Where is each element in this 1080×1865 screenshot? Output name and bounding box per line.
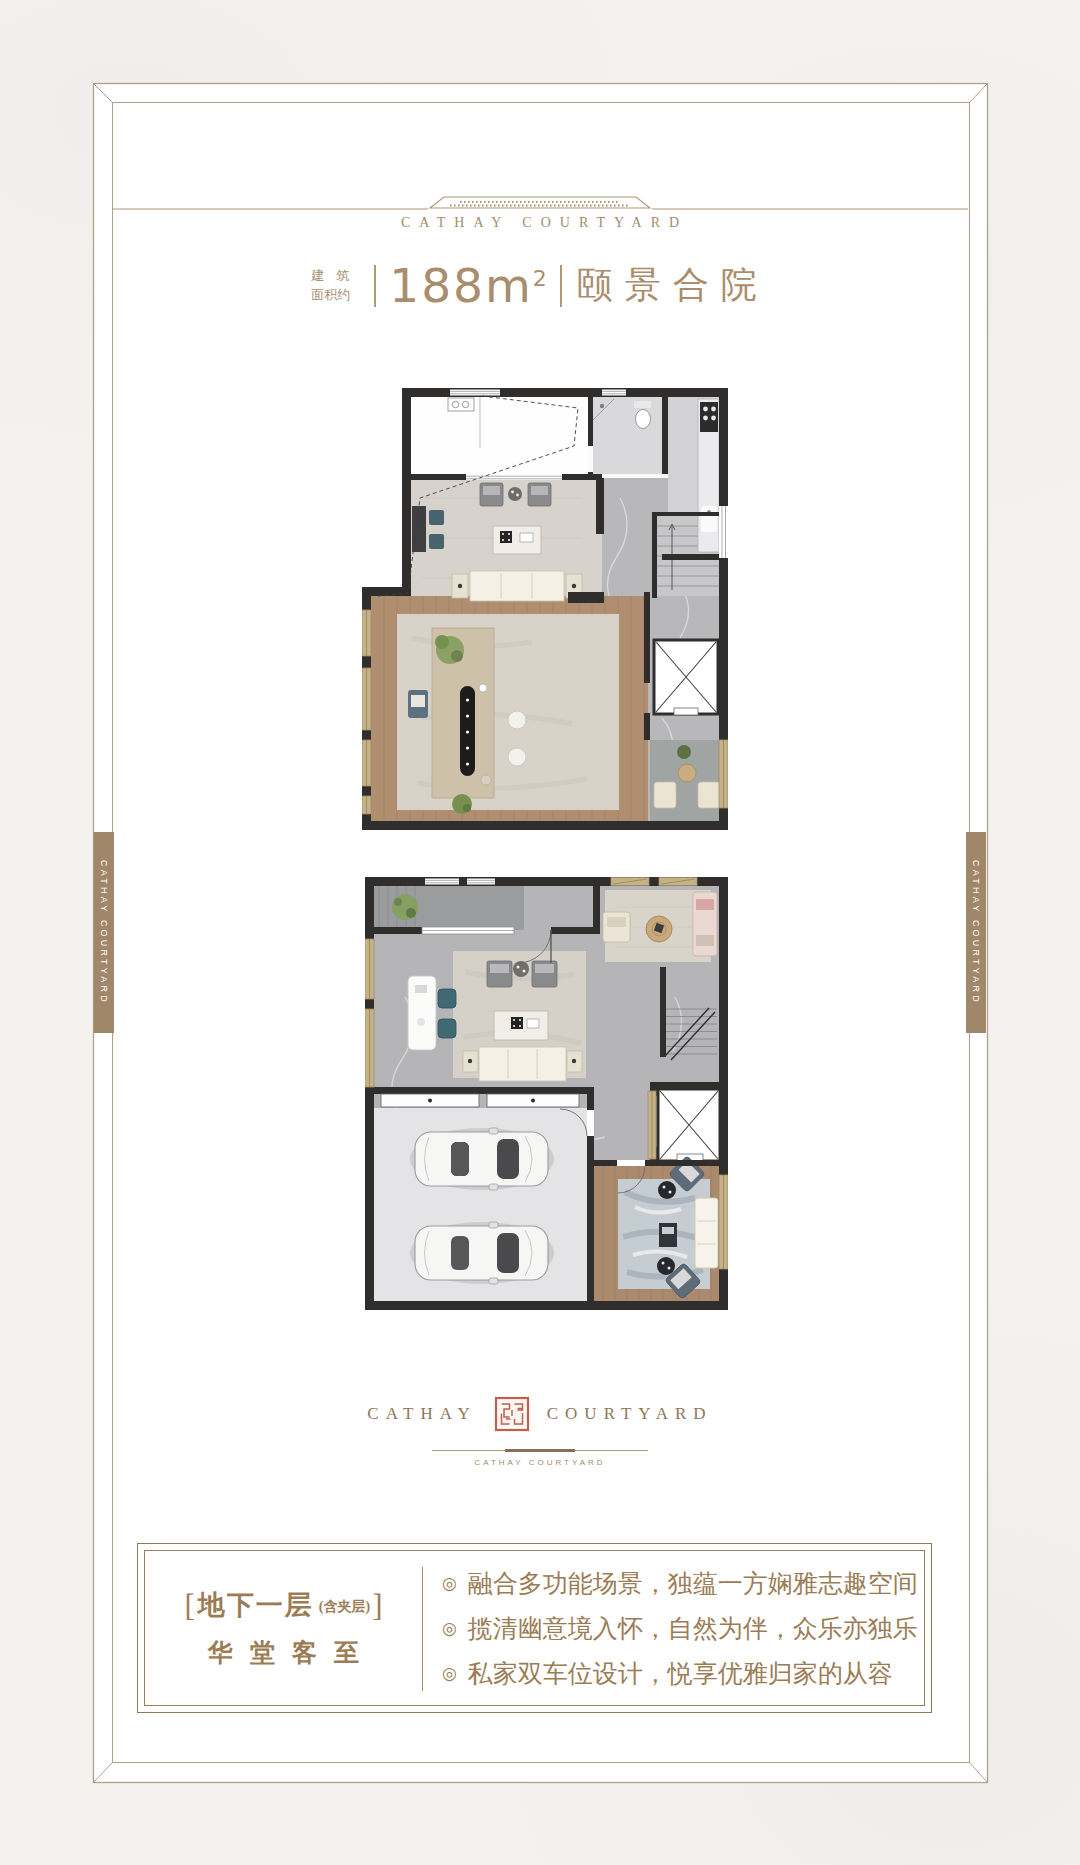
roof-ornament-icon	[90, 186, 990, 216]
info-box-inner: [ 地下一层 (含夹层) ] 华堂客至 ◎ 融合多功能场景，独蕴一方娴雅志趣空间…	[144, 1550, 925, 1706]
title-row: 建筑 面积约 188m2 颐景合院	[0, 258, 1080, 313]
floor-plan-upper	[362, 388, 728, 830]
side-tab-label: CATHAY COURTYARD	[99, 860, 109, 1005]
footer-logo-courtyard: COURTYARD	[547, 1404, 713, 1424]
area-value: 188m2	[389, 258, 547, 313]
bullet-row: ◎ 融合多功能场景，独蕴一方娴雅志趣空间	[442, 1567, 924, 1600]
bullet-row: ◎ 揽清幽意境入怀，自然为伴，众乐亦独乐	[442, 1612, 924, 1645]
area-prefix: 建筑 面积约	[311, 267, 361, 305]
side-tab-label: CATHAY COURTYARD	[971, 860, 981, 1005]
bullet-icon: ◎	[442, 1618, 457, 1639]
bullet-text: 融合多功能场景，独蕴一方娴雅志趣空间	[468, 1567, 918, 1600]
area-prefix-line2: 面积约	[311, 286, 361, 305]
floor-label: 地下一层	[198, 1587, 314, 1623]
bullet-row: ◎ 私家双车位设计，悦享优雅归家的从容	[442, 1657, 924, 1690]
bullet-icon: ◎	[442, 1573, 457, 1594]
footer-logo-cathay: CATHAY	[367, 1404, 476, 1424]
footer-logo: CATHAY COURTYARD	[0, 1396, 1080, 1432]
bracket-close: ]	[372, 1590, 382, 1621]
area-prefix-line1: 建筑	[311, 267, 361, 286]
info-left-column: [ 地下一层 (含夹层) ] 华堂客至	[145, 1551, 422, 1705]
area-superscript: 2	[533, 266, 547, 291]
title-divider	[374, 265, 376, 307]
title-divider	[560, 265, 562, 307]
bullet-icon: ◎	[442, 1663, 457, 1684]
bracket-open: [	[185, 1590, 195, 1621]
floor-tagline: 华堂客至	[191, 1636, 376, 1669]
floor-plan-lower	[365, 877, 728, 1310]
plan-upper-elevator	[654, 640, 718, 715]
floor-title: [ 地下一层 (含夹层) ]	[185, 1587, 383, 1623]
footer-rule	[432, 1449, 648, 1452]
footer-sublogo: CATHAY COURTYARD	[0, 1458, 1080, 1467]
brochure-page: CATHAY COURTYARD CATHAY COURTYARD CATHAY…	[0, 0, 1080, 1865]
bullet-text: 揽清幽意境入怀，自然为伴，众乐亦独乐	[468, 1612, 918, 1645]
plan-lower-elevator	[658, 1089, 720, 1161]
bullet-text: 私家双车位设计，悦享优雅归家的从容	[468, 1657, 893, 1690]
product-name: 颐景合院	[575, 261, 769, 310]
side-tab-right: CATHAY COURTYARD	[966, 832, 986, 1033]
seal-icon	[494, 1396, 530, 1432]
floor-note: (含夹层)	[319, 1598, 370, 1616]
header-brand-text: CATHAY COURTYARD	[0, 215, 1080, 231]
side-tab-left: CATHAY COURTYARD	[94, 832, 114, 1033]
info-bullet-list: ◎ 融合多功能场景，独蕴一方娴雅志趣空间 ◎ 揽清幽意境入怀，自然为伴，众乐亦独…	[423, 1551, 924, 1705]
info-box: [ 地下一层 (含夹层) ] 华堂客至 ◎ 融合多功能场景，独蕴一方娴雅志趣空间…	[137, 1543, 932, 1713]
